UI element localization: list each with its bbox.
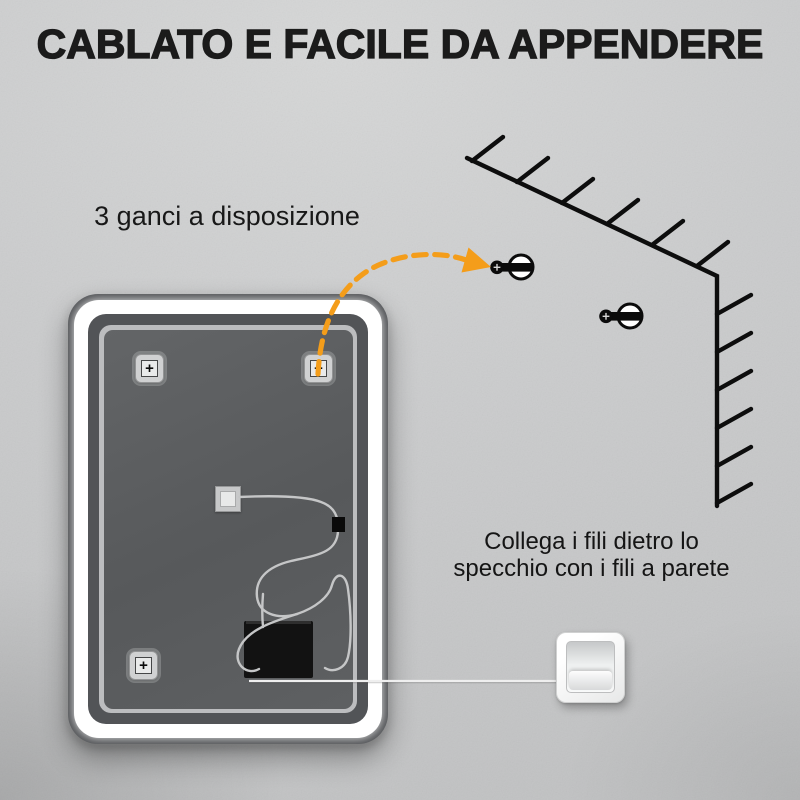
wiring-annotation-line1: Collega i fili dietro lo xyxy=(440,529,743,556)
wall-hook-screw-icon xyxy=(599,304,642,328)
mounting-bracket-bottom-left: + xyxy=(129,651,158,680)
screw-cross-icon: + xyxy=(141,360,158,377)
screw-cross-icon: + xyxy=(310,360,327,377)
led-ring xyxy=(74,300,382,738)
screw-cross-icon: + xyxy=(135,657,152,674)
cable-junction-square-inner xyxy=(220,491,236,507)
wiring-annotation-line2: specchio con i fili a parete xyxy=(440,556,743,583)
hooks-annotation: 3 ganci a disposizione xyxy=(58,201,396,232)
wiring-annotation: Collega i fili dietro lo specchio con i … xyxy=(440,529,743,582)
product-infographic: CABLATO E FACILE DA APPENDERE 3 ganci a … xyxy=(0,0,800,800)
page-title: CABLATO E FACILE DA APPENDERE xyxy=(0,21,800,68)
light-switch-rocker xyxy=(566,641,615,693)
mounting-bracket-top-left: + xyxy=(135,354,164,383)
wall-corner-hatch-icon xyxy=(467,137,751,506)
mirror-back-panel xyxy=(68,294,388,744)
light-switch-icon xyxy=(556,632,625,703)
cable-junction-square xyxy=(215,486,241,512)
mounting-bracket-top-right: + xyxy=(304,354,333,383)
light-switch-rocker-lip xyxy=(569,671,612,690)
wall-hook-screw-icon xyxy=(490,255,533,279)
